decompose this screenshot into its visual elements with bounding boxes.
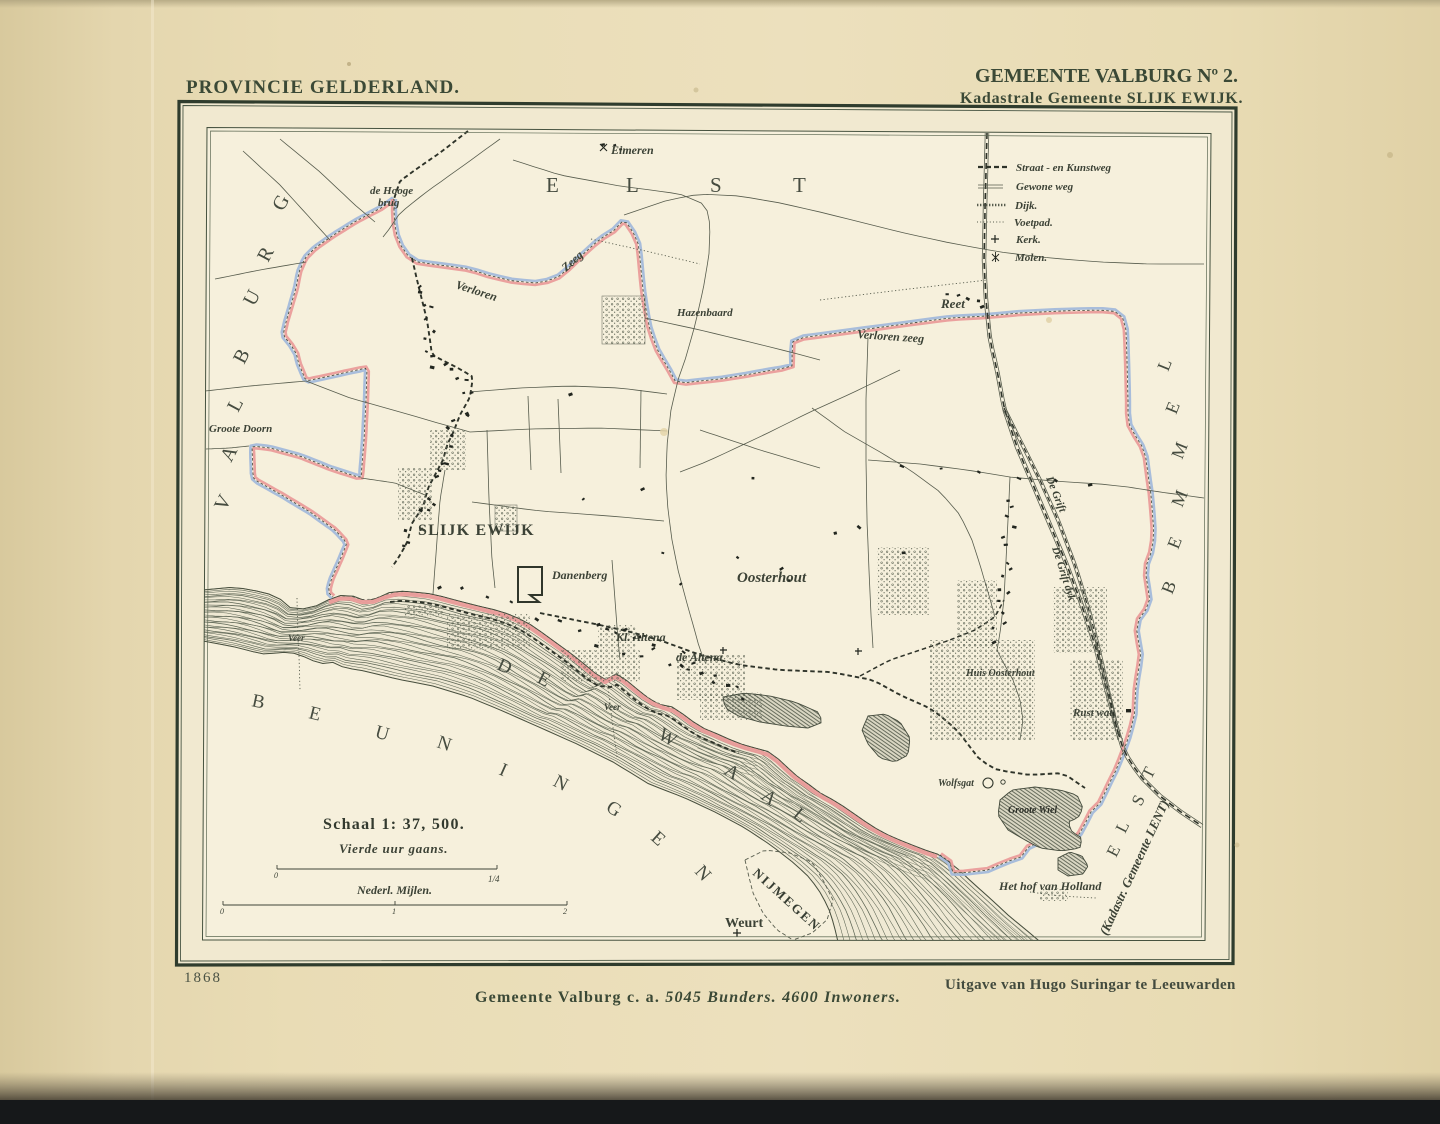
svg-text:Straat - en Kunstweg: Straat - en Kunstweg [1016, 162, 1112, 174]
svg-text:Kadastrale Gemeente SLIJK EWIJ: Kadastrale Gemeente SLIJK EWIJK. [960, 90, 1243, 107]
svg-text:GEMEENTE VALBURG Nº 2.: GEMEENTE VALBURG Nº 2. [975, 65, 1240, 87]
svg-text:1/4: 1/4 [488, 874, 500, 884]
svg-text:Eimeren: Eimeren [610, 143, 654, 157]
svg-text:Veer: Veer [604, 702, 621, 712]
svg-text:Kl. Altena: Kl. Altena [615, 630, 666, 644]
svg-text:brug: brug [378, 197, 400, 209]
svg-text:0: 0 [220, 907, 224, 916]
svg-text:de Altena: de Altena [676, 650, 723, 664]
svg-text:Weurt: Weurt [725, 916, 763, 931]
svg-text:Wolfsgat: Wolfsgat [938, 778, 975, 789]
svg-text:1868: 1868 [184, 970, 222, 986]
svg-text:L: L [626, 173, 639, 197]
svg-text:Oosterhout: Oosterhout [737, 570, 807, 586]
svg-text:Gewone weg: Gewone weg [1016, 181, 1074, 193]
svg-text:Het hof van Holland: Het hof van Holland [998, 879, 1102, 893]
svg-text:2: 2 [563, 907, 567, 916]
svg-text:Nederl. Mijlen.: Nederl. Mijlen. [356, 883, 432, 897]
svg-text:SLIJK EWIJK: SLIJK EWIJK [418, 522, 535, 539]
svg-text:Danenberg: Danenberg [551, 568, 607, 582]
svg-text:Molen.: Molen. [1014, 252, 1047, 264]
svg-text:PROVINCIE GELDERLAND.: PROVINCIE GELDERLAND. [186, 77, 462, 98]
svg-text:Dijk.: Dijk. [1014, 200, 1037, 212]
svg-text:Voetpad.: Voetpad. [1014, 217, 1053, 229]
svg-text:E: E [546, 173, 559, 197]
svg-text:Vierde uur gaans.: Vierde uur gaans. [339, 841, 448, 856]
svg-text:Huis Oosterhout: Huis Oosterhout [965, 668, 1036, 679]
svg-text:de Hooge: de Hooge [370, 185, 413, 197]
svg-text:Gemeente Valburg c. a. 5045 Bu: Gemeente Valburg c. a. 5045 Bunders. 460… [475, 989, 901, 1006]
svg-text:Groote Doorn: Groote Doorn [209, 423, 272, 435]
svg-text:Groote Wiel: Groote Wiel [1008, 805, 1057, 816]
svg-text:T: T [793, 173, 806, 197]
svg-text:Reet: Reet [940, 296, 965, 311]
svg-text:Uitgave van Hugo Suringar te L: Uitgave van Hugo Suringar te Leeuwarden [945, 977, 1236, 993]
svg-text:S: S [710, 173, 722, 197]
svg-text:Rust wat: Rust wat [1072, 707, 1113, 719]
svg-text:1: 1 [392, 907, 396, 916]
svg-text:Kerk.: Kerk. [1015, 234, 1041, 246]
svg-text:Schaal 1: 37, 500.: Schaal 1: 37, 500. [323, 816, 465, 833]
svg-text:0: 0 [274, 871, 278, 880]
svg-text:Hazenbaard: Hazenbaard [676, 307, 733, 319]
svg-text:Veer: Veer [288, 633, 305, 643]
